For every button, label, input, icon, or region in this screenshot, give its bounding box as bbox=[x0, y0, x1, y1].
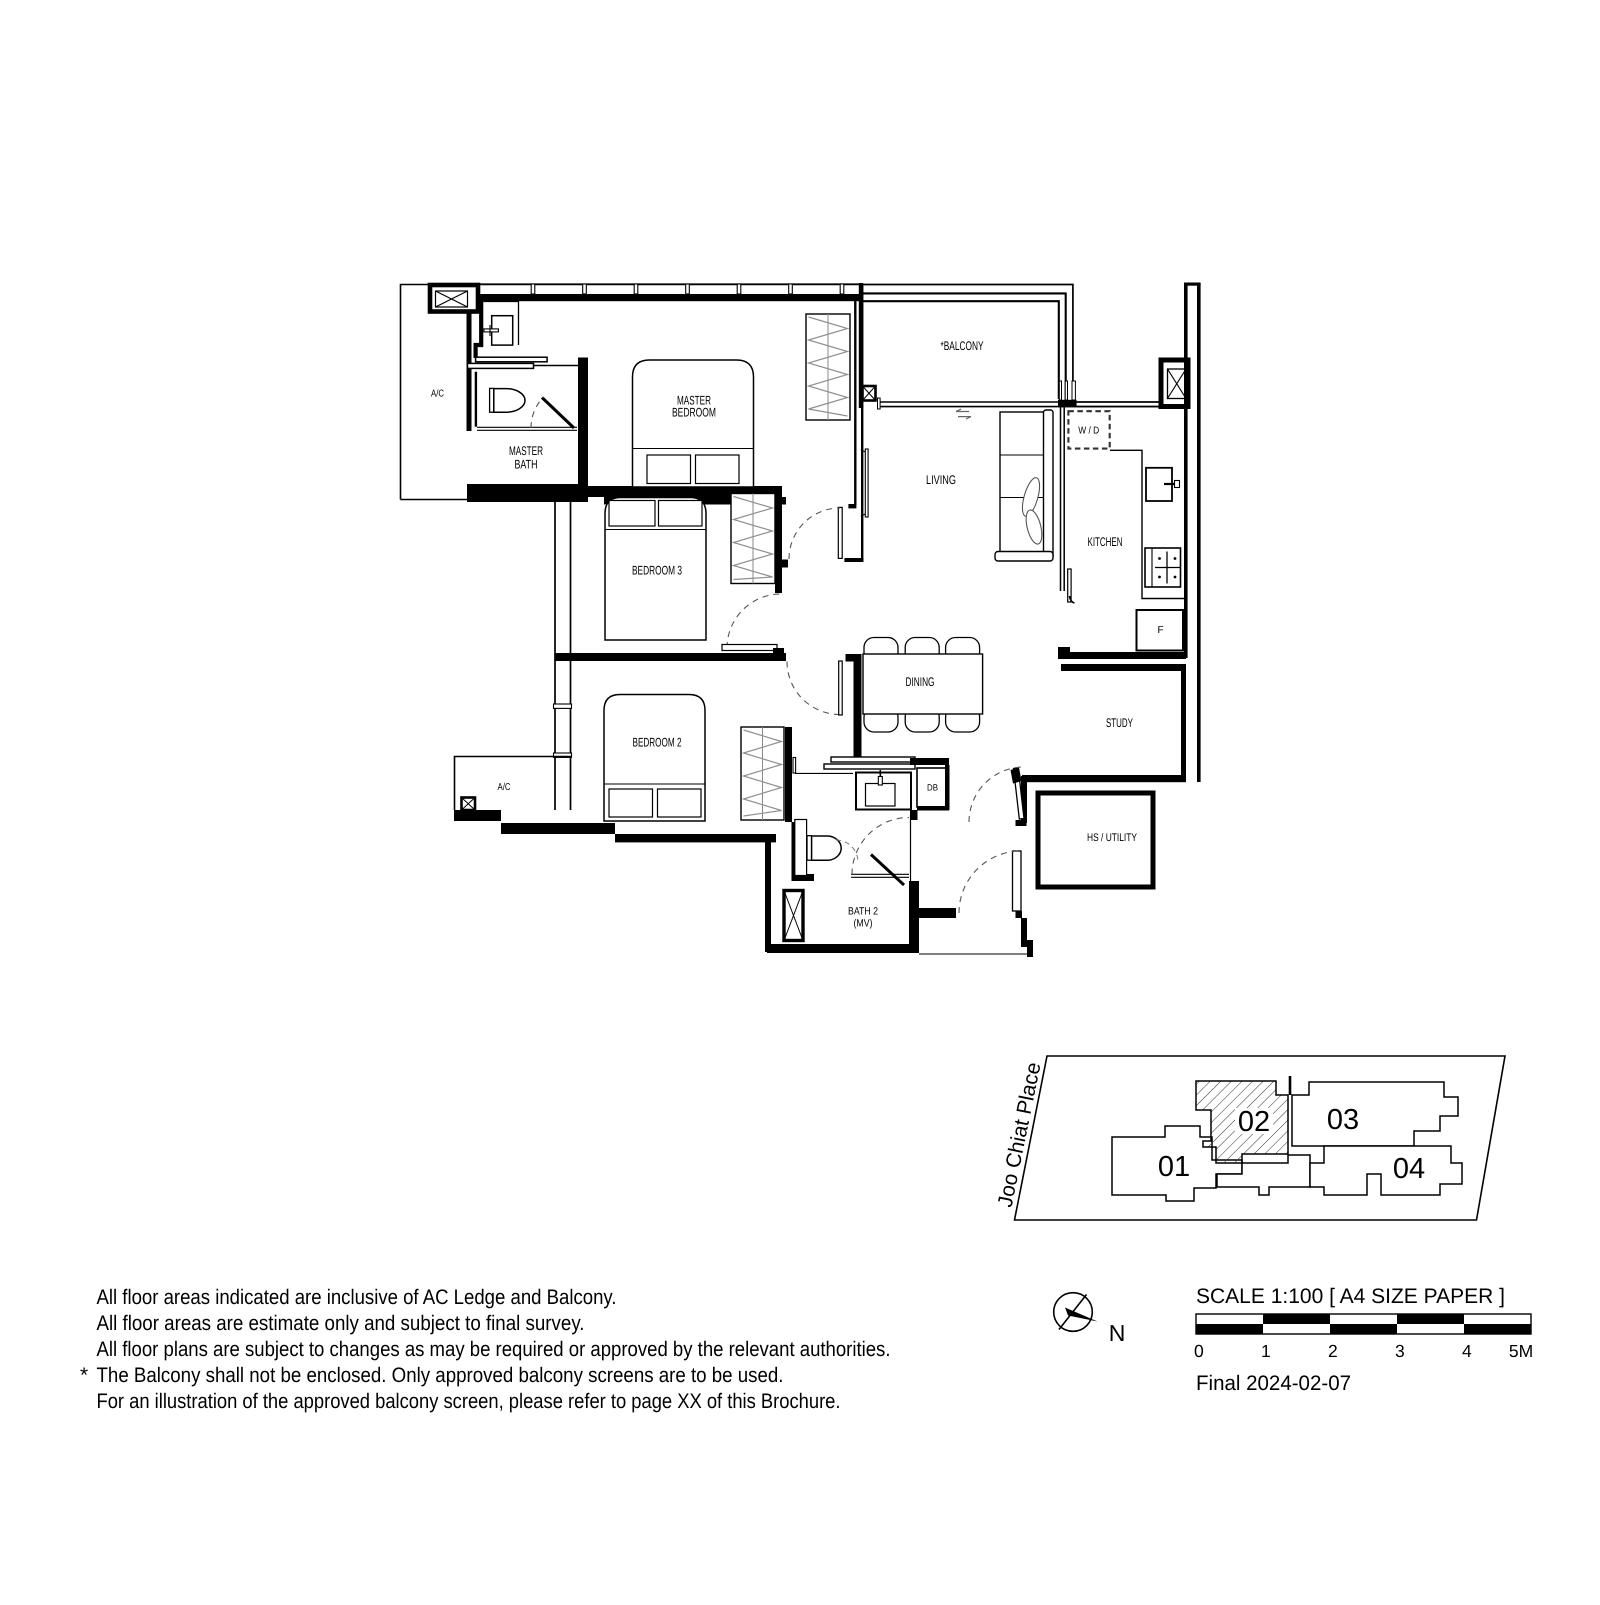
svg-text:F: F bbox=[1157, 625, 1163, 636]
svg-text:*BALCONY: *BALCONY bbox=[941, 339, 984, 353]
svg-text:04: 04 bbox=[1393, 1153, 1425, 1185]
svg-text:MASTER: MASTER bbox=[509, 444, 543, 458]
svg-text:01: 01 bbox=[1158, 1151, 1190, 1183]
svg-text:All floor areas indicated are: All floor areas indicated are inclusive … bbox=[97, 1286, 617, 1309]
svg-text:2: 2 bbox=[1328, 1341, 1338, 1361]
svg-text:03: 03 bbox=[1327, 1104, 1359, 1136]
svg-text:STUDY: STUDY bbox=[1106, 716, 1133, 730]
svg-text:BATH: BATH bbox=[515, 458, 538, 472]
svg-text:All floor plans are subject to: All floor plans are subject to changes a… bbox=[97, 1338, 891, 1361]
svg-text:(MV): (MV) bbox=[854, 918, 873, 930]
svg-text:02: 02 bbox=[1238, 1106, 1270, 1138]
svg-text:W / D: W / D bbox=[1078, 426, 1099, 437]
svg-text:DINING: DINING bbox=[906, 675, 935, 689]
svg-text:*: * bbox=[80, 1364, 88, 1387]
svg-text:The Balcony shall not be enclo: The Balcony shall not be enclosed. Only … bbox=[97, 1364, 784, 1387]
svg-text:A/C: A/C bbox=[498, 782, 511, 793]
svg-text:A/C: A/C bbox=[431, 389, 444, 400]
svg-text:5M: 5M bbox=[1509, 1341, 1533, 1361]
svg-text:BEDROOM: BEDROOM bbox=[672, 406, 716, 420]
svg-text:BEDROOM 2: BEDROOM 2 bbox=[633, 736, 682, 750]
svg-text:4: 4 bbox=[1462, 1341, 1472, 1361]
svg-text:DB: DB bbox=[927, 783, 938, 793]
svg-text:HS / UTILITY: HS / UTILITY bbox=[1087, 832, 1138, 844]
svg-text:0: 0 bbox=[1194, 1341, 1204, 1361]
svg-text:1: 1 bbox=[1261, 1341, 1271, 1361]
svg-text:KITCHEN: KITCHEN bbox=[1088, 535, 1123, 549]
svg-text:3: 3 bbox=[1395, 1341, 1405, 1361]
svg-text:Final 2024-02-07: Final 2024-02-07 bbox=[1196, 1372, 1351, 1395]
svg-text:SCALE 1:100 [ A4 SIZE PAPER ]: SCALE 1:100 [ A4 SIZE PAPER ] bbox=[1196, 1285, 1505, 1308]
svg-text:All floor areas are estimate o: All floor areas are estimate only and su… bbox=[97, 1312, 585, 1335]
svg-text:LIVING: LIVING bbox=[926, 473, 956, 487]
svg-text:N: N bbox=[1109, 1320, 1126, 1346]
svg-text:BATH 2: BATH 2 bbox=[848, 906, 878, 918]
svg-text:For an illustration of the app: For an illustration of the approved balc… bbox=[97, 1390, 841, 1413]
svg-text:BEDROOM 3: BEDROOM 3 bbox=[632, 564, 682, 578]
